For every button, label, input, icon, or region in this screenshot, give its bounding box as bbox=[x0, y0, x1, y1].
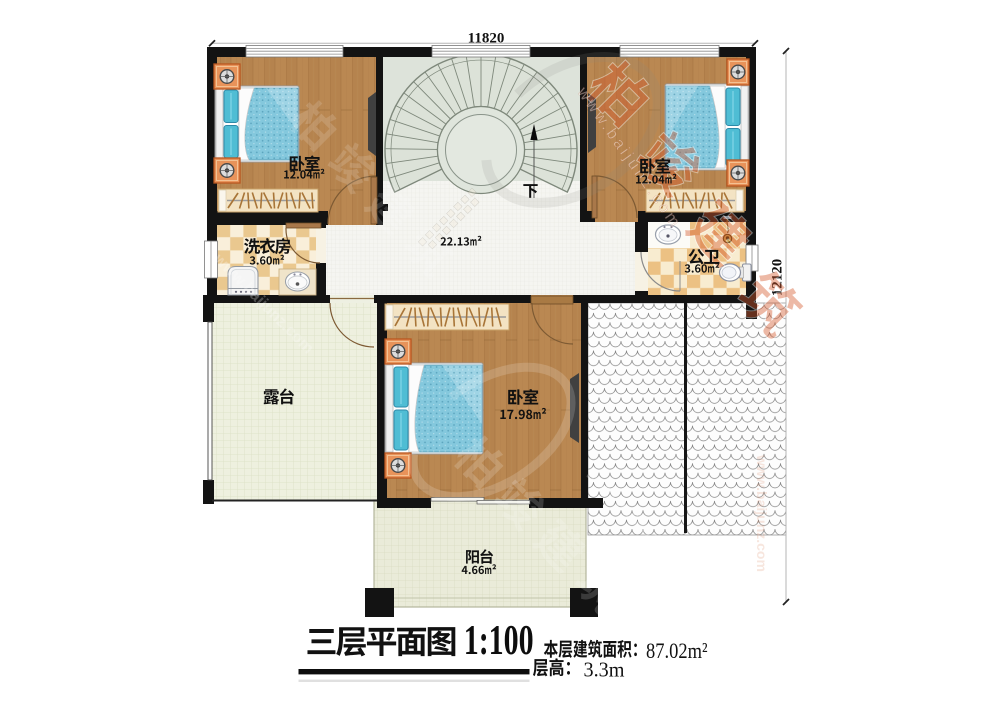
svg-text:www.baijunz.com: www.baijunz.com bbox=[754, 454, 770, 572]
svg-text:1:100: 1:100 bbox=[464, 618, 534, 664]
svg-text:87.02m²: 87.02m² bbox=[646, 638, 708, 663]
svg-text:11820: 11820 bbox=[468, 31, 505, 47]
svg-text:3.3m: 3.3m bbox=[584, 657, 625, 681]
